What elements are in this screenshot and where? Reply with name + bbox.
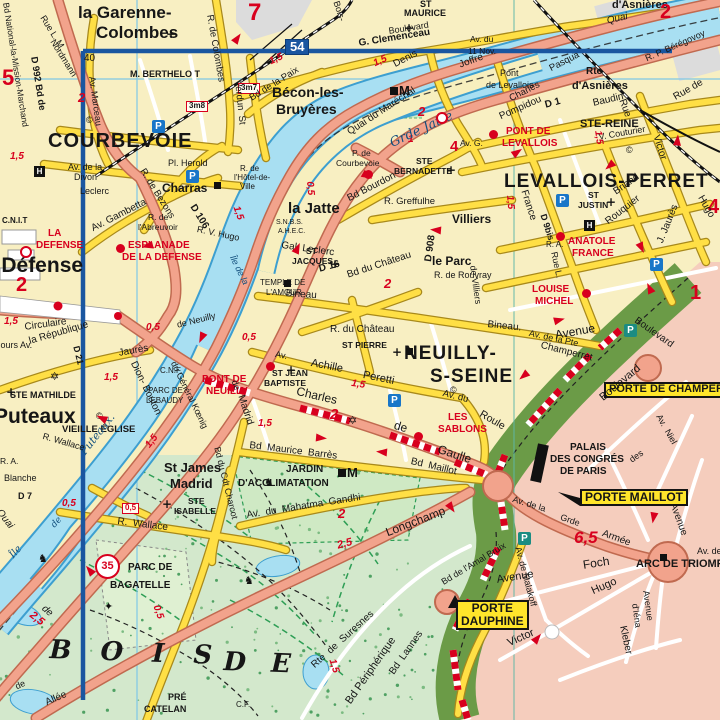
map-label: LEBAUDY xyxy=(146,397,183,406)
church-icon: + xyxy=(392,346,402,358)
metro-station-dot xyxy=(266,362,275,371)
map-label: STE xyxy=(188,497,205,506)
map-label: Ville xyxy=(240,183,255,192)
metro-station-dot xyxy=(414,432,423,441)
map-label: Av. xyxy=(274,350,288,362)
copyright-icon: © xyxy=(86,116,93,125)
synagogue-icon: ✡ xyxy=(348,416,357,427)
one-way-arrow-icon xyxy=(430,226,442,235)
plate-number-54: 54 xyxy=(285,39,309,55)
hospital-icon: H xyxy=(34,166,45,177)
map-label: STE xyxy=(416,157,433,166)
distance-marker: 6,5 xyxy=(574,529,598,547)
map-label: 1,5 xyxy=(4,317,18,328)
map-label: BERNADETTE xyxy=(394,167,452,176)
map-label: Blanche xyxy=(4,474,37,484)
city-la-garenne-colombes: la Garenne- xyxy=(78,4,172,22)
map-label: P. de xyxy=(352,149,371,158)
poi-arc-de-triomphe: ARC DE TRIOMPHE xyxy=(636,559,720,571)
map-label: R. A. xyxy=(546,241,563,250)
city-la-defense: la Défense xyxy=(0,255,83,278)
map-label: 1,5 xyxy=(10,152,24,163)
map-label: R. Greffulhe xyxy=(384,197,435,207)
building-icon xyxy=(214,182,221,189)
city-neuilly: NEUILLY- xyxy=(404,344,497,365)
map-label: Pont xyxy=(500,69,519,79)
metro-anatole-france: FRANCE xyxy=(572,249,614,260)
page-number: 2 xyxy=(660,2,671,24)
metro-icon: M xyxy=(390,84,410,97)
district-st-james: St James xyxy=(164,461,221,475)
parking-underground-icon: P xyxy=(624,324,637,337)
map-label: R. A. xyxy=(0,457,18,466)
synagogue-icon: ✡ xyxy=(50,372,59,383)
map-label: 2 xyxy=(384,277,391,291)
rer-station-icon xyxy=(436,112,448,124)
map-label: 0,5 xyxy=(122,503,139,514)
map-label: l'Abreuvoir xyxy=(138,223,178,232)
map-label: Rte xyxy=(586,67,602,78)
metro-pont-de-levallois: LEVALLOIS xyxy=(502,139,557,150)
church-icon: + xyxy=(606,196,616,208)
page-number: 2 xyxy=(16,275,27,297)
map-label: CATELAN xyxy=(144,705,186,715)
parking-underground-icon: P xyxy=(518,532,531,545)
metro-les-sablons: SABLONS xyxy=(438,425,487,436)
church-icon: + xyxy=(446,164,456,176)
metro-station-dot xyxy=(489,130,498,139)
church-icon: + xyxy=(330,258,340,270)
map-label: 2 xyxy=(418,105,425,119)
map-label: ST xyxy=(588,191,599,200)
building-icon xyxy=(660,554,667,561)
building-icon xyxy=(284,280,291,287)
parking-icon: P xyxy=(388,394,401,407)
park-bagatelle: PARC DE xyxy=(128,563,172,574)
map-label: D 7 xyxy=(18,492,32,502)
metro-louise-michel: MICHEL xyxy=(535,297,573,308)
map-label: 40 xyxy=(84,54,95,65)
map-label: ST xyxy=(306,247,317,256)
metro-esplanade: ESPLANADE xyxy=(128,241,190,252)
forest-bois-de-boulogne: D E xyxy=(223,648,299,679)
map-label: Av. du xyxy=(470,35,493,44)
map-label: Av. de xyxy=(697,547,720,557)
map-label: BAPTISTE xyxy=(264,379,306,388)
building-icon xyxy=(406,348,413,355)
porte-dauphine-box: PORTE DAUPHINE xyxy=(456,600,529,630)
map-label: R. de Rouvray xyxy=(434,271,492,281)
map-label: C.F. xyxy=(236,701,250,710)
map-label: 0,5 xyxy=(242,333,256,344)
map-label: Leclerc xyxy=(80,187,109,197)
map-label: PRÉ xyxy=(168,693,187,703)
hospital-icon: H xyxy=(584,220,595,231)
map-label: le Parc xyxy=(432,255,471,268)
metro-la-defense: DEFENSE xyxy=(36,241,83,252)
metro-louise-michel: LOUISE xyxy=(532,285,569,296)
map-label: Pl. Herold xyxy=(168,159,208,169)
city-courbevoie: COURBEVOIE xyxy=(48,131,192,153)
district-madrid: Madrid xyxy=(170,477,213,491)
city-neuilly: S-SEINE xyxy=(430,367,513,388)
map-label: ISABELLE xyxy=(174,507,216,516)
district-la-jatte: la Jatte xyxy=(288,201,340,217)
map-label: TEMPLE DE xyxy=(260,279,305,288)
city-levallois-perret: LEVALLOIS-PERRET xyxy=(504,172,709,193)
chateau-bagatelle-icon: ✦ xyxy=(104,602,113,613)
map-label: STE MATHILDE xyxy=(10,391,76,401)
horse-riding-icon: ♞ xyxy=(244,576,254,587)
page-number: 1 xyxy=(690,283,701,305)
church-icon: + xyxy=(166,28,176,40)
map-label: JUSTIN xyxy=(578,201,608,210)
map-label: ST PIERRE xyxy=(342,341,387,350)
map-label: 0,5 xyxy=(146,323,160,334)
map-label: 1,5 xyxy=(503,195,515,210)
district-becon: Bruyères xyxy=(276,102,337,117)
map-label: 0,5 xyxy=(62,499,76,510)
map-label: M. BERTHELO T xyxy=(130,70,200,80)
church-icon: + xyxy=(6,386,16,398)
map-label: 2 xyxy=(78,91,85,105)
parking-icon: P xyxy=(152,120,165,133)
map-label: C.N.I.T xyxy=(2,217,27,226)
map-label: R. de xyxy=(148,213,168,222)
metro-station-dot xyxy=(556,232,565,241)
map-label: Av. G. xyxy=(460,139,483,148)
church-icon: + xyxy=(162,498,172,510)
horse-riding-icon: ♞ xyxy=(38,554,48,565)
map-label: 3m8 xyxy=(186,101,208,112)
one-way-arrow-icon xyxy=(673,134,682,146)
map-label: 4 xyxy=(450,139,458,155)
parking-icon: P xyxy=(186,170,199,183)
parking-icon: P xyxy=(556,194,569,207)
map-label: Charras xyxy=(162,182,207,195)
metro-anatole-france: ANATOLE xyxy=(568,237,615,248)
forest-bois-de-boulogne: B O I S xyxy=(49,636,223,670)
map-label: Divon xyxy=(74,173,97,183)
map-canvas: la Garenne-ColombesCOURBEVOIELEVALLOIS-P… xyxy=(0,0,720,720)
map-label: 2 xyxy=(330,407,338,423)
poi-palais-des-congres: DE PARIS xyxy=(560,467,607,478)
map-label: Cours Av. xyxy=(0,341,32,351)
horse-riding-icon: ♞ xyxy=(264,478,274,489)
parking-icon: P xyxy=(650,258,663,271)
district-becon: Bécon-les- xyxy=(272,85,344,100)
park-jardin-acclimatation: D'ACCLIMATATION xyxy=(238,479,329,490)
metro-pont-de-levallois: PONT DE xyxy=(506,127,550,138)
map-label: d'Iéna xyxy=(629,603,642,628)
metro-esplanade: DE LA DEFENSE xyxy=(122,253,202,264)
one-way-arrow-icon xyxy=(316,434,328,443)
map-label: 0,5 xyxy=(303,181,315,196)
poi-palais-des-congres: PALAIS xyxy=(570,443,606,454)
metro-icon: M xyxy=(338,466,358,479)
park-jardin-acclimatation: JARDIN xyxy=(286,465,323,476)
metro-les-sablons: LES xyxy=(448,413,467,424)
copyright-icon: © xyxy=(450,386,457,395)
metro-la-defense: LA xyxy=(48,229,61,240)
metro-station-dot xyxy=(116,244,125,253)
poi-palais-des-congres: DES CONGRÉS xyxy=(550,455,624,466)
one-way-arrow-icon xyxy=(376,448,388,457)
map-label: 2 xyxy=(338,507,345,521)
church-icon: + xyxy=(404,22,414,34)
map-label: Courbevoie xyxy=(336,159,379,168)
copyright-icon: © xyxy=(626,146,633,155)
church-icon: + xyxy=(286,364,296,376)
metro-station-dot xyxy=(582,289,591,298)
map-label: 1,5 xyxy=(104,373,118,384)
map-label: PARC DE xyxy=(148,387,183,396)
route-35-marker: 35 xyxy=(95,554,120,579)
map-label: MAURICE xyxy=(404,9,446,19)
map-label: Bineau xyxy=(285,289,317,302)
map-label: A.H.E.C. xyxy=(278,228,305,236)
page-number: 7 xyxy=(248,0,261,26)
park-bagatelle: BAGATELLE xyxy=(110,581,170,592)
rer-station-icon xyxy=(20,246,32,258)
map-label: S.N.B.S. xyxy=(276,219,303,227)
map-label: Villiers xyxy=(452,213,491,226)
map-label: 1,5 xyxy=(258,419,272,430)
map-label: R. du Château xyxy=(330,325,395,336)
